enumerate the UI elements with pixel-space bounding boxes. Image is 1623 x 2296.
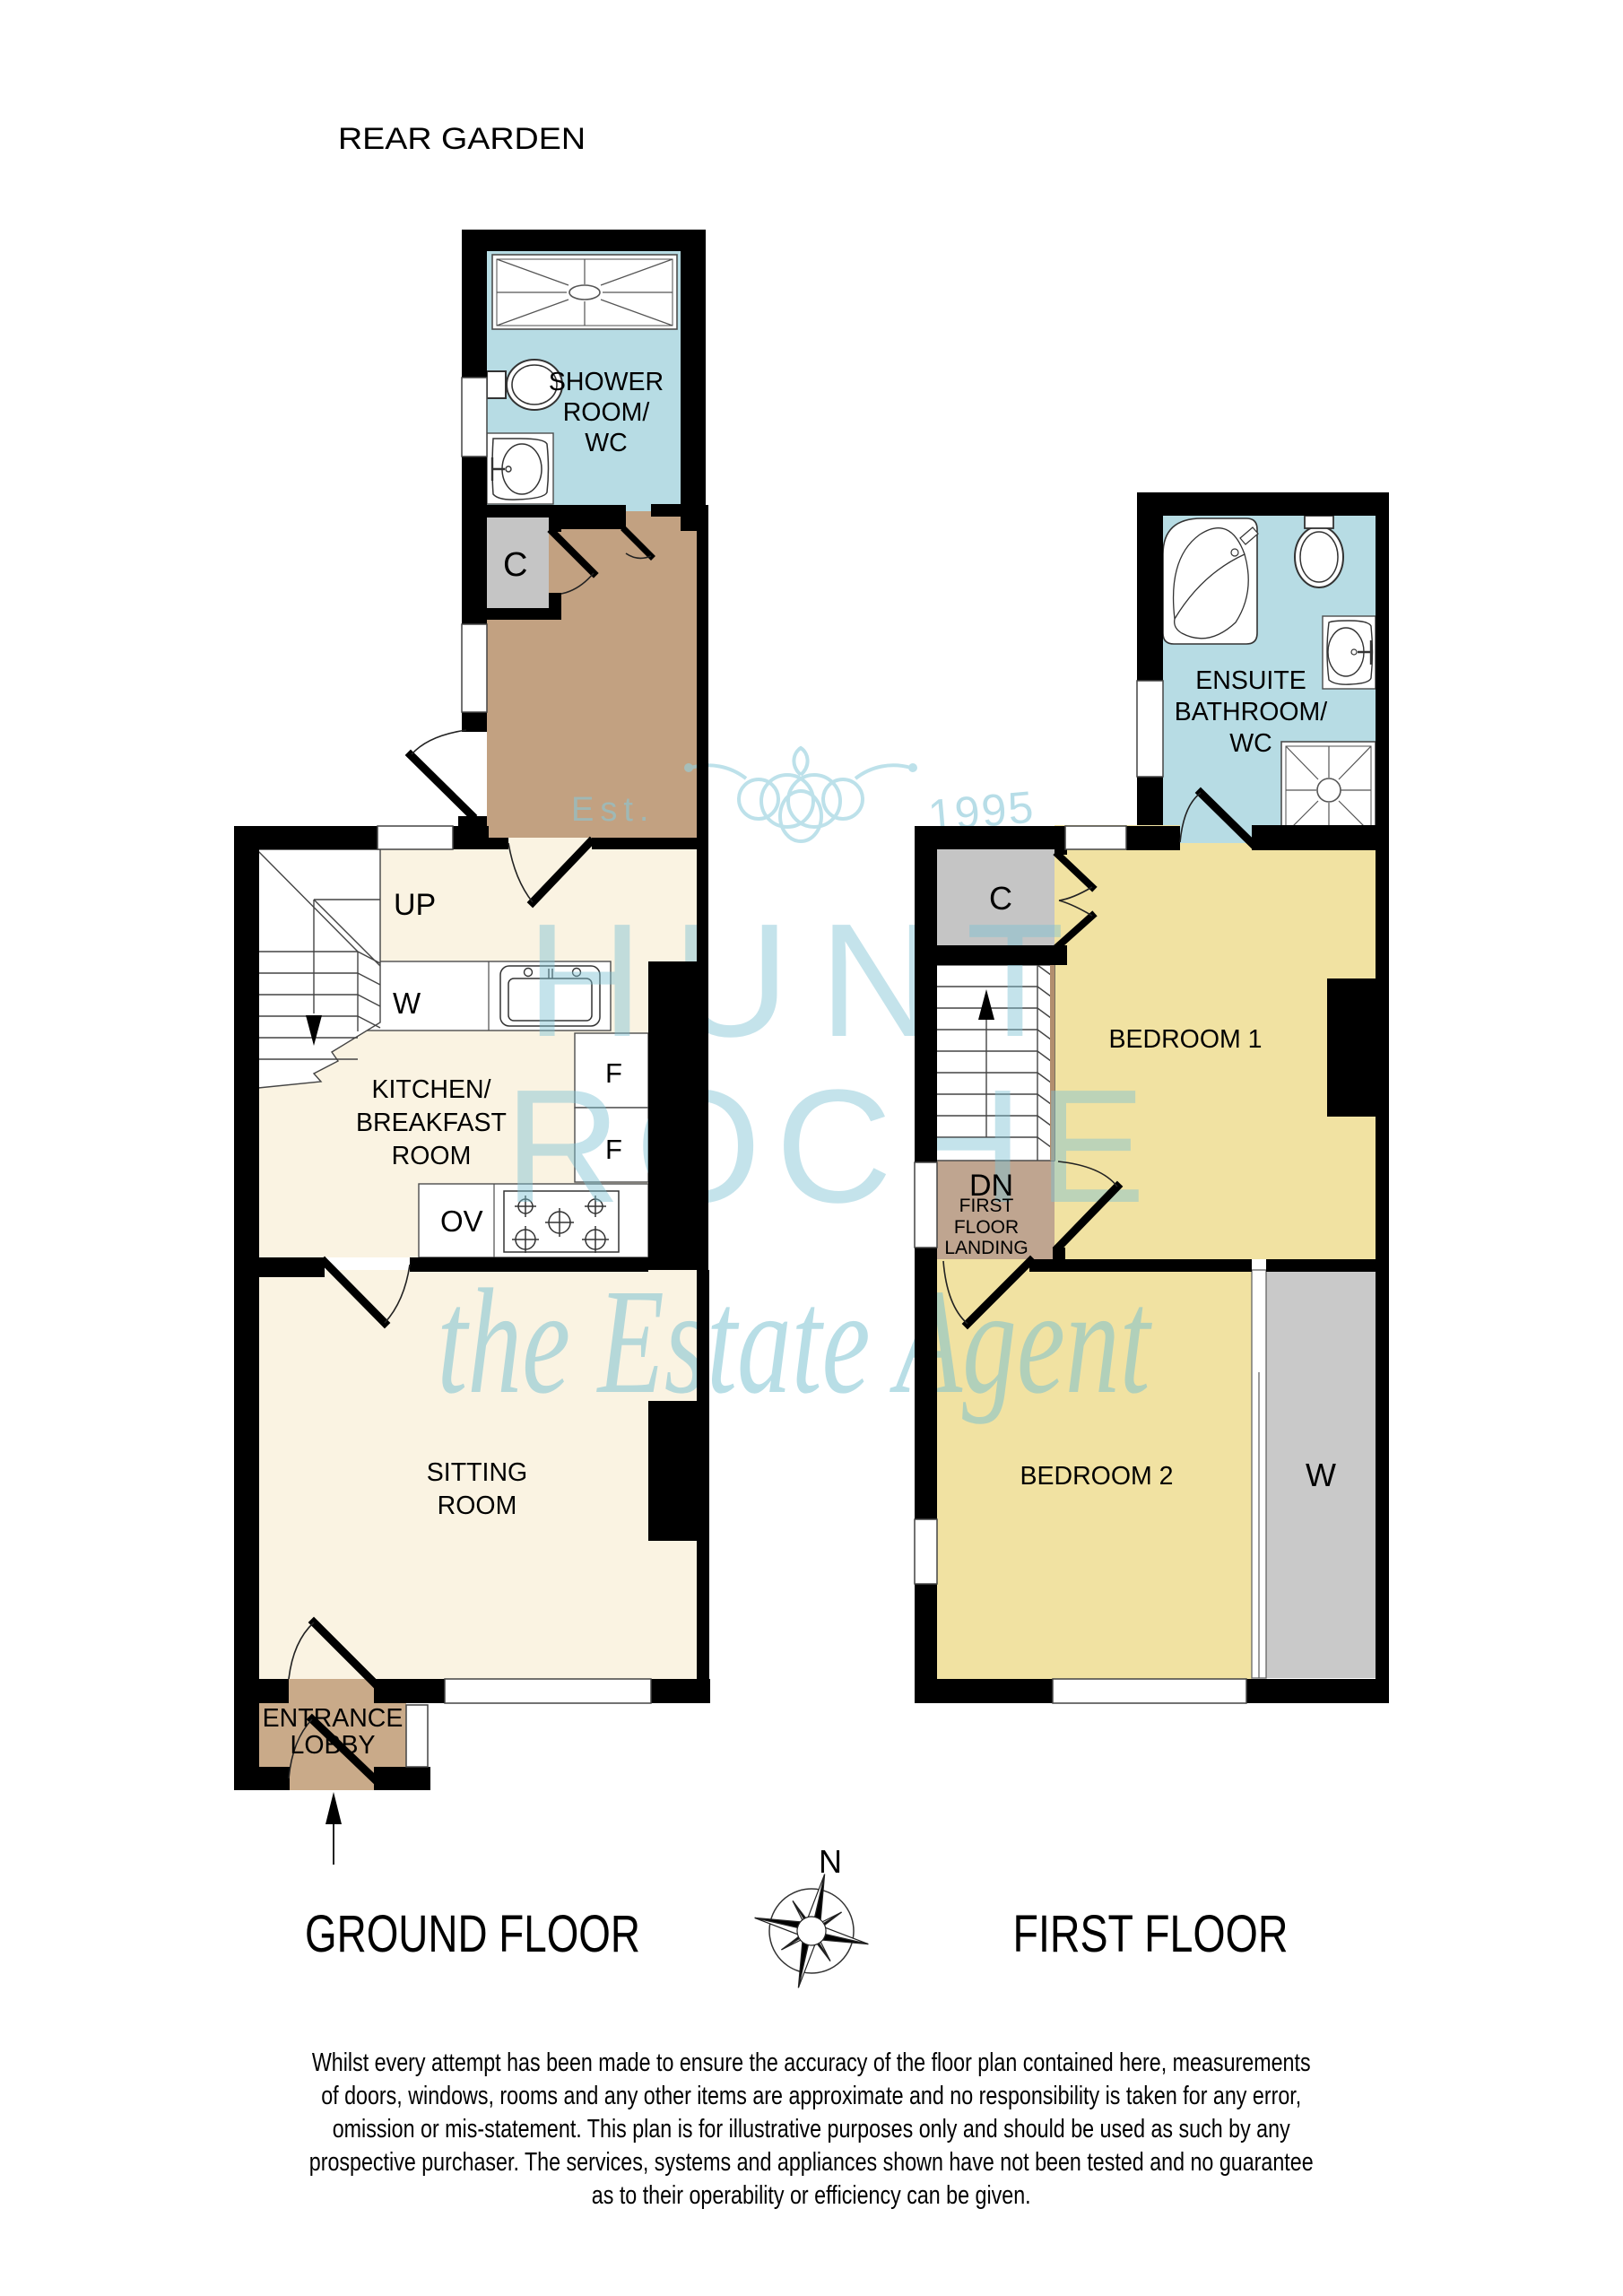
svg-text:ROCHE: ROCHE [505, 1057, 1146, 1237]
svg-text:FIRST: FIRST [959, 1196, 1014, 1216]
svg-text:LOBBY: LOBBY [290, 1731, 375, 1760]
svg-text:REAR GARDEN: REAR GARDEN [338, 122, 586, 156]
svg-text:BEDROOM 1: BEDROOM 1 [1108, 1025, 1262, 1054]
svg-text:W: W [1306, 1457, 1336, 1493]
svg-text:Whilst every attempt has been: Whilst every attempt has been made to en… [312, 2048, 1311, 2077]
svg-text:ROOM: ROOM [392, 1142, 472, 1170]
svg-text:ENSUITE: ENSUITE [1195, 666, 1306, 695]
svg-text:WC: WC [585, 429, 627, 457]
svg-text:BEDROOM 2: BEDROOM 2 [1020, 1462, 1173, 1491]
svg-text:GROUND FLOOR: GROUND FLOOR [305, 1905, 640, 1963]
svg-text:omission or mis-statement. Thi: omission or mis-statement. This plan is … [333, 2114, 1291, 2144]
svg-text:BREAKFAST: BREAKFAST [356, 1109, 507, 1137]
svg-text:OV: OV [440, 1205, 483, 1238]
svg-text:KITCHEN/: KITCHEN/ [371, 1075, 490, 1104]
svg-text:WC: WC [1229, 729, 1271, 758]
svg-text:Est.: Est. [571, 791, 655, 829]
svg-text:as to their operability or eff: as to their operability or efficiency ca… [592, 2180, 1031, 2210]
svg-text:the Estate Agent: the Estate Agent [438, 1258, 1153, 1425]
svg-text:W: W [393, 987, 421, 1020]
svg-text:FLOOR: FLOOR [954, 1217, 1019, 1238]
svg-text:of doors, windows, rooms and a: of doors, windows, rooms and any other i… [321, 2081, 1301, 2110]
svg-text:SITTING: SITTING [427, 1458, 527, 1487]
svg-text:C: C [989, 880, 1012, 917]
svg-text:BATHROOM/: BATHROOM/ [1175, 698, 1328, 726]
svg-text:UP: UP [394, 888, 436, 922]
svg-text:N: N [819, 1843, 842, 1880]
svg-text:ROOM: ROOM [438, 1492, 517, 1520]
svg-text:SHOWER: SHOWER [549, 368, 664, 396]
svg-text:ROOM/: ROOM/ [563, 398, 650, 427]
svg-text:FIRST FLOOR: FIRST FLOOR [1013, 1905, 1289, 1963]
svg-text:F: F [605, 1057, 622, 1089]
svg-text:LANDING: LANDING [944, 1238, 1028, 1258]
svg-text:ENTRANCE: ENTRANCE [263, 1704, 404, 1733]
svg-text:C: C [503, 546, 527, 584]
svg-text:F: F [605, 1134, 622, 1165]
svg-text:prospective purchaser. The ser: prospective purchaser. The services, sys… [309, 2147, 1314, 2177]
